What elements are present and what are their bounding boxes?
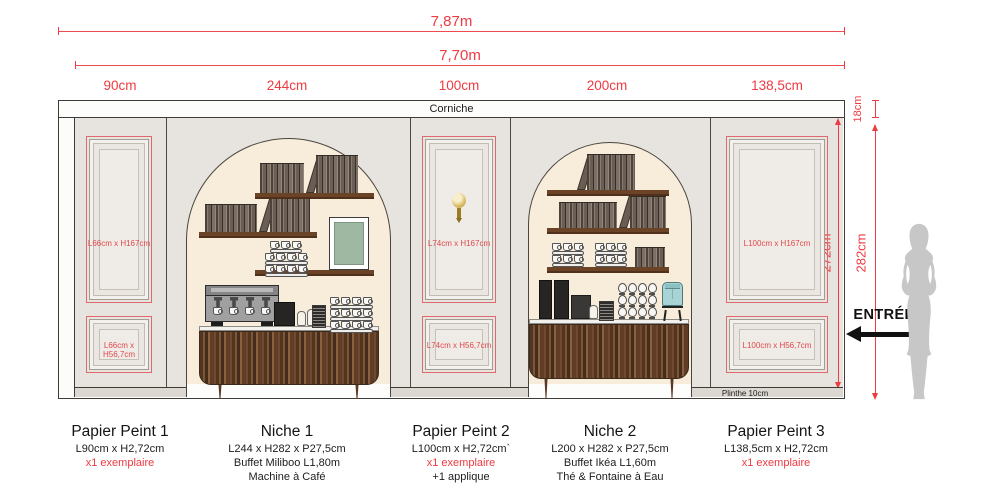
section-divider xyxy=(710,118,711,387)
books xyxy=(205,204,257,233)
panel-size-label: L66cm x H167cm xyxy=(87,239,151,248)
panel-size-label: L100cm x H167cm xyxy=(727,239,827,248)
dispenser-stand xyxy=(662,306,683,321)
buffet-body xyxy=(529,324,689,379)
storage-box xyxy=(571,295,591,319)
shelf xyxy=(547,267,669,273)
elevation-drawing: 7,87m 7,70m 90cm 244cm 100cm 200cm 138,5… xyxy=(0,0,988,495)
dispenser-tank xyxy=(662,282,683,306)
corniche: Corniche xyxy=(59,101,844,118)
person-silhouette xyxy=(889,221,949,402)
wallpaper-panel-3-top: L100cm x H167cm xyxy=(726,136,828,303)
plinthe-label: Plinthe 10cm xyxy=(675,389,815,398)
machine-top-band xyxy=(206,286,278,296)
total-width-label: 7,87m xyxy=(58,13,845,30)
niche-1 xyxy=(186,138,391,397)
books xyxy=(559,202,617,229)
jar xyxy=(589,305,598,319)
legend-size: L138,5cm x H2,72cm xyxy=(671,443,881,457)
inner-width-line xyxy=(75,65,845,66)
wall-height-line xyxy=(875,126,876,398)
jar xyxy=(297,311,306,326)
corniche-height-label: 18cm xyxy=(852,96,864,123)
corniche-height-line xyxy=(875,100,876,118)
storage-box xyxy=(539,280,552,319)
segment-label: 100cm xyxy=(414,78,504,93)
wall-return xyxy=(59,118,75,397)
section-divider xyxy=(166,118,167,387)
wallpaper-panel-1-bottom: L66cm x H56,7cm xyxy=(86,316,152,373)
plate-stack xyxy=(312,305,326,328)
storage-box xyxy=(274,302,295,326)
entrance-arrow-head xyxy=(846,326,861,342)
books xyxy=(260,163,304,194)
picture-mat xyxy=(334,222,364,265)
machine-group-heads xyxy=(210,297,274,307)
storage-box xyxy=(554,280,569,319)
shelf xyxy=(199,232,317,238)
wallpaper-panel-1-top: L66cm x H167cm xyxy=(86,136,152,303)
buffet-leg xyxy=(669,379,675,398)
cups-stack xyxy=(261,241,311,277)
espresso-machine xyxy=(205,285,279,326)
legend-item: Thé & Fontaine à Eau xyxy=(505,471,715,485)
panel-size-label: L100cm x H56,7cm xyxy=(727,341,827,350)
wall-sconce-icon xyxy=(452,193,466,208)
books xyxy=(635,247,665,268)
picture-frame xyxy=(329,217,369,270)
buffet-leg xyxy=(354,385,360,399)
inner-width-label: 7,70m xyxy=(75,47,845,64)
wallpaper-panel-3-bottom: L100cm x H56,7cm xyxy=(726,316,828,373)
legend-title: Papier Peint 3 xyxy=(671,423,881,441)
wall-height-label: 282cm xyxy=(854,233,869,272)
section-divider xyxy=(410,118,411,387)
wall-elevation: Corniche Plinthe 10cm L66cm x H167cm L66… xyxy=(58,100,845,399)
wall-sconce-stem xyxy=(457,208,461,219)
panel-size-label: L74cm x H56,7cm xyxy=(423,341,495,350)
section-divider xyxy=(510,118,511,387)
cups-stack xyxy=(591,243,631,267)
cups-stack xyxy=(548,243,588,267)
segment-label: 90cm xyxy=(75,78,165,93)
water-dispenser xyxy=(662,282,683,319)
panel-size-label: L66cm x H56,7cm xyxy=(87,341,151,359)
books xyxy=(270,196,310,233)
glasses-stack xyxy=(613,283,661,319)
buffet-1 xyxy=(199,326,379,399)
panel-height-line xyxy=(838,120,839,387)
books xyxy=(316,155,358,194)
plate-stack xyxy=(599,301,614,321)
wallpaper-panel-2-bottom: L74cm x H56,7cm xyxy=(422,316,496,373)
cups-stack xyxy=(326,297,376,333)
buffet-leg xyxy=(217,385,223,399)
segment-label: 244cm xyxy=(242,78,332,93)
segment-label: 200cm xyxy=(562,78,652,93)
buffet-2 xyxy=(529,319,689,400)
buffet-body xyxy=(199,331,379,385)
niche-2 xyxy=(528,142,692,397)
panel-size-label: L74cm x H167cm xyxy=(423,239,495,248)
total-width-line xyxy=(58,31,845,32)
legend-wallpaper-3: Papier Peint 3 L138,5cm x H2,72cm x1 exe… xyxy=(671,423,881,471)
buffet-leg xyxy=(543,379,549,398)
segment-label: 138,5cm xyxy=(732,78,822,93)
corniche-label: Corniche xyxy=(59,103,844,115)
machine-cups xyxy=(210,307,274,315)
books xyxy=(630,196,666,229)
books xyxy=(587,154,635,191)
shelf xyxy=(547,228,669,234)
shelf xyxy=(255,193,374,199)
shelf xyxy=(547,190,669,196)
legend-count: x1 exemplaire xyxy=(671,457,881,471)
